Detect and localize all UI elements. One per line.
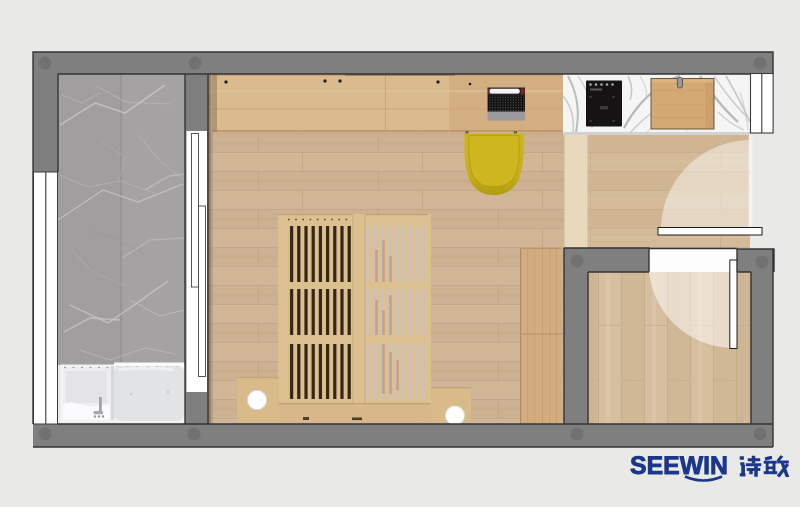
svg-text:SEEWIN: SEEWIN [630,452,728,480]
